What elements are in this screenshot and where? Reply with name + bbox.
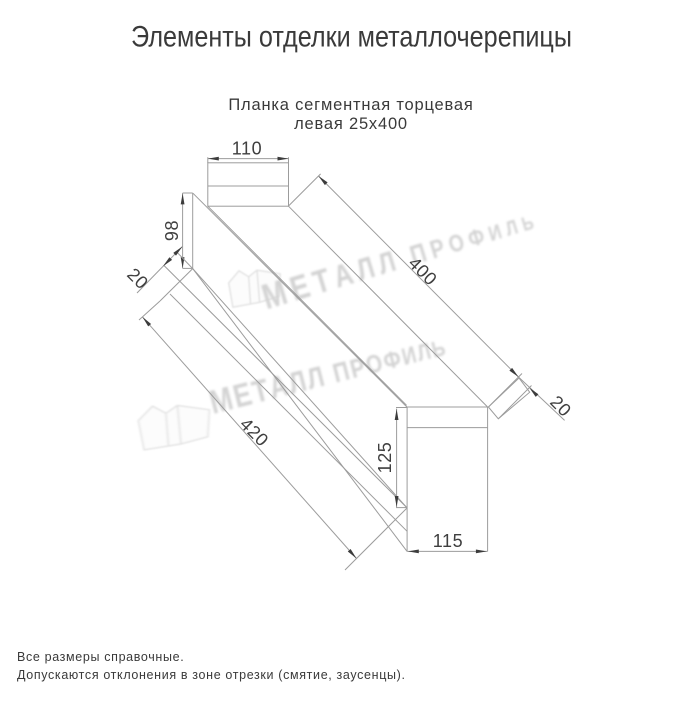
- svg-text:110: 110: [232, 139, 263, 159]
- svg-text:115: 115: [433, 531, 464, 551]
- svg-text:Допускаются отклонения в зоне: Допускаются отклонения в зоне отрезки (с…: [17, 668, 406, 682]
- svg-text:Планка сегментная торцевая: Планка сегментная торцевая: [228, 96, 473, 114]
- svg-text:98: 98: [162, 220, 182, 241]
- svg-text:левая 25х400: левая 25х400: [294, 115, 408, 133]
- svg-text:Элементы отделки металлочерепи: Элементы отделки металлочерепицы: [131, 19, 572, 53]
- svg-text:Все размеры справочные.: Все размеры справочные.: [17, 650, 184, 664]
- svg-text:125: 125: [375, 442, 395, 474]
